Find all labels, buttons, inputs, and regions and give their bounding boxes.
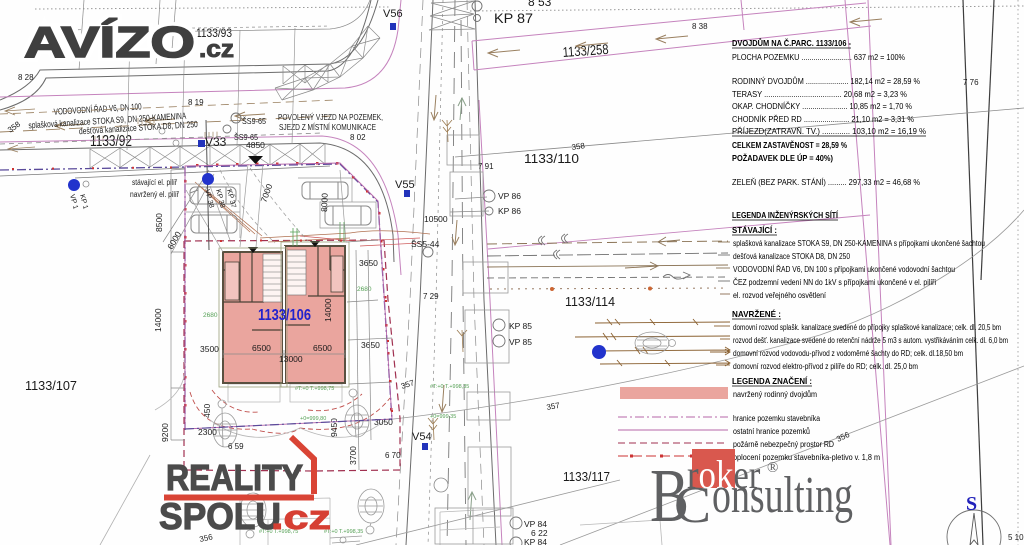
svg-text:domovní rozvod elektro-přívod: domovní rozvod elektro-přívod z pilíře d… (733, 362, 918, 371)
svg-text:TERASY .......................: TERASY .................................… (732, 89, 907, 99)
svg-text:PLOCHA POZEMKU ...............: PLOCHA POZEMKU .........................… (732, 52, 905, 62)
svg-text:domovní rozvod splašk. kanaliz: domovní rozvod splašk. kanalizace sveden… (733, 323, 1001, 332)
svg-text:14000: 14000 (153, 308, 163, 332)
svg-text:358: 358 (571, 141, 586, 152)
svg-text:OKAP. CHODNÍČKY ..............: OKAP. CHODNÍČKY ...................... 1… (732, 101, 912, 111)
svg-text:LEGENDA INŽENÝRSKÝCH SÍTÍ: LEGENDA INŽENÝRSKÝCH SÍTÍ (732, 209, 839, 220)
svg-text:VODOVODNÍ ŘAD V6, DN 100 s pří: VODOVODNÍ ŘAD V6, DN 100 s přípojkami uk… (733, 265, 955, 274)
svg-text:1133/107: 1133/107 (25, 378, 77, 393)
svg-text:RODINNÝ DVOJDŮM ..............: RODINNÝ DVOJDŮM ..................... 18… (732, 75, 920, 86)
svg-text:8 28: 8 28 (18, 73, 34, 82)
svg-text:stávající el. pilíř: stávající el. pilíř (132, 178, 177, 187)
svg-text:1133/117: 1133/117 (563, 469, 610, 484)
svg-text:KP 87: KP 87 (494, 10, 533, 26)
svg-text:DVOJDŮM NA Č.PARC. 1133/106 -: DVOJDŮM NA Č.PARC. 1133/106 - (732, 37, 851, 48)
svg-text:V55: V55 (395, 179, 415, 191)
svg-text:ČEZ podzemní vedení NN do 1kV: ČEZ podzemní vedení NN do 1kV s přípojka… (733, 278, 936, 287)
svg-text:CHODNÍK PŘED RD ..............: CHODNÍK PŘED RD ...................... 2… (732, 114, 914, 124)
svg-text:LEGENDA ZNAČENÍ :: LEGENDA ZNAČENÍ : (732, 375, 812, 386)
svg-text:3700: 3700 (348, 446, 358, 465)
svg-text:el. rozvod veřejného osvětlení: el. rozvod veřejného osvětlení (733, 291, 827, 300)
svg-text:450: 450 (202, 404, 212, 418)
svg-text:3650: 3650 (361, 340, 380, 350)
svg-text:8 38: 8 38 (692, 22, 708, 31)
svg-text:ZELEŇ (BEZ PARK. STÁNÍ) ......: ZELEŇ (BEZ PARK. STÁNÍ) ......... 297,33… (732, 177, 920, 187)
svg-text:6500: 6500 (313, 343, 332, 353)
svg-text:8 53: 8 53 (528, 0, 552, 9)
svg-text:10500: 10500 (424, 214, 448, 224)
svg-text:ostatní hranice pozemků: ostatní hranice pozemků (733, 427, 810, 436)
svg-text:1133/92: 1133/92 (90, 133, 132, 150)
svg-text:KP 84: KP 84 (524, 537, 547, 545)
svg-text:POŽADAVEK DLE ÚP = 40%): POŽADAVEK DLE ÚP = 40%) (732, 152, 833, 163)
svg-text:6500: 6500 (252, 343, 271, 353)
svg-text:6 59: 6 59 (228, 442, 244, 451)
svg-text:AVÍZO: AVÍZO (24, 17, 195, 67)
svg-text:9450: 9450 (329, 418, 339, 437)
svg-text:14000: 14000 (323, 298, 333, 322)
svg-text:KP 86: KP 86 (498, 206, 521, 216)
svg-text:13000: 13000 (279, 354, 303, 364)
svg-text:#T:+0 T.+998,35: #T:+0 T.+998,35 (430, 384, 469, 390)
svg-text:8 02: 8 02 (350, 133, 366, 142)
svg-text:2680: 2680 (357, 286, 372, 293)
svg-text:POVOLENÝ VJEZD NA POZEMEK,: POVOLENÝ VJEZD NA POZEMEK, (278, 112, 383, 122)
svg-text:S: S (966, 493, 977, 515)
svg-text:3500: 3500 (200, 344, 219, 354)
svg-text:rozvod dešť. kanalizace sveden: rozvod dešť. kanalizace svedené do reten… (733, 336, 1008, 345)
svg-text:REALITY: REALITY (166, 457, 303, 498)
svg-text:požárně nebezpečný prostor RD: požárně nebezpečný prostor RD (733, 440, 834, 449)
svg-text:SPOLU: SPOLU (159, 496, 281, 537)
svg-text:domovní rozvod vodovodu-přívod: domovní rozvod vodovodu-přívod z vodoměr… (733, 349, 963, 358)
svg-text:SJEZD Z MÍSTNÍ KOMUNIKACE: SJEZD Z MÍSTNÍ KOMUNIKACE (279, 122, 376, 132)
svg-text:8000: 8000 (319, 193, 330, 213)
svg-text:NAVRŽENÉ :: NAVRŽENÉ : (732, 308, 781, 319)
svg-text:7 29: 7 29 (423, 292, 439, 301)
svg-text:1133/110: 1133/110 (524, 151, 579, 166)
svg-text:dešťová kanalizace STOKA D8, D: dešťová kanalizace STOKA D8, DN 250 (733, 252, 850, 261)
svg-text:6 70: 6 70 (385, 451, 401, 460)
svg-text:V56: V56 (383, 8, 403, 20)
svg-text:VP 85: VP 85 (509, 337, 532, 347)
svg-text:.cz: .cz (199, 36, 234, 63)
svg-text:VP 86: VP 86 (498, 191, 521, 201)
svg-text:1133/114: 1133/114 (565, 294, 615, 309)
svg-text:C: C (674, 477, 711, 534)
svg-text:5 10: 5 10 (1008, 533, 1024, 542)
svg-text:+0=999,80: +0=999,80 (300, 416, 326, 422)
svg-text:PŘÍJEZD(ZATRAVŇ. TV.) ........: PŘÍJEZD(ZATRAVŇ. TV.) ............. 103,… (732, 126, 926, 136)
svg-text:hranice pozemku stavebníka: hranice pozemku stavebníka (733, 414, 820, 423)
svg-text:8500: 8500 (154, 213, 164, 232)
svg-text:splašková kanalizace STOKA S9,: splašková kanalizace STOKA S9, DN 250-KA… (733, 239, 985, 248)
svg-text:9200: 9200 (160, 423, 170, 442)
svg-text:ŠS5-44: ŠS5-44 (411, 239, 440, 249)
svg-text:.cz: .cz (271, 499, 331, 537)
svg-text:ŠS9-65: ŠS9-65 (242, 116, 266, 126)
svg-text:KP 85: KP 85 (509, 321, 532, 331)
svg-text:navržený el. pilíř: navržený el. pilíř (130, 190, 179, 199)
svg-text:STÁVAJÍCÍ :: STÁVAJÍCÍ : (732, 225, 777, 235)
svg-text:1133/106: 1133/106 (258, 307, 311, 324)
svg-text:V54: V54 (412, 431, 432, 443)
svg-text:+0=999,35: +0=999,35 (430, 414, 456, 420)
svg-text:7 91: 7 91 (478, 162, 494, 171)
svg-text:4850: 4850 (246, 140, 265, 150)
svg-text:2680: 2680 (203, 312, 218, 319)
svg-text:CELKEM ZASTAVĚNOST = 28,59 %: CELKEM ZASTAVĚNOST = 28,59 % (732, 139, 847, 150)
svg-text:navržený rodinný dvojdům: navržený rodinný dvojdům (733, 390, 817, 399)
svg-text:onsulting: onsulting (712, 467, 853, 524)
svg-text:7 76: 7 76 (963, 78, 979, 87)
